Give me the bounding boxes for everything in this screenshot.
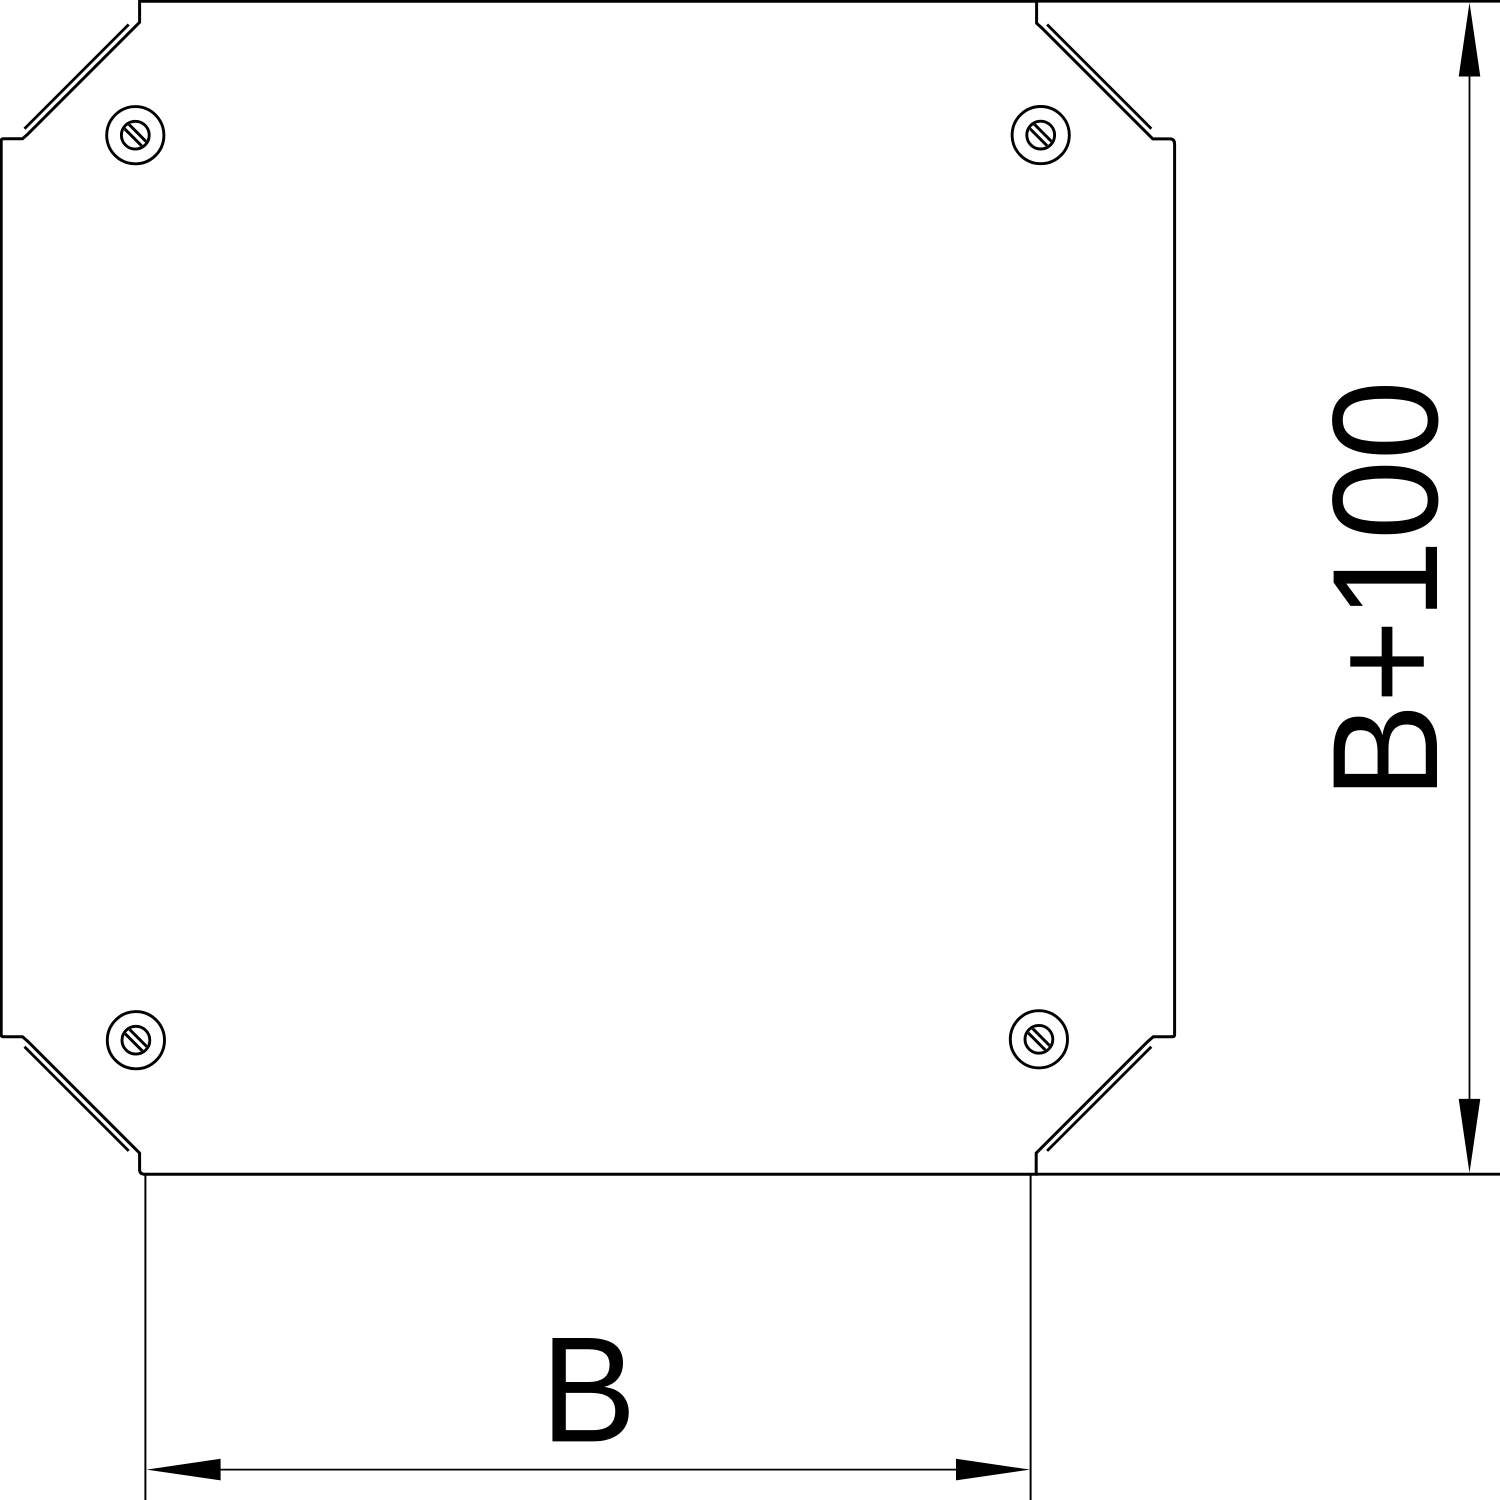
svg-text:B: B (541, 1306, 637, 1474)
svg-text:B+100: B+100 (1302, 380, 1470, 799)
